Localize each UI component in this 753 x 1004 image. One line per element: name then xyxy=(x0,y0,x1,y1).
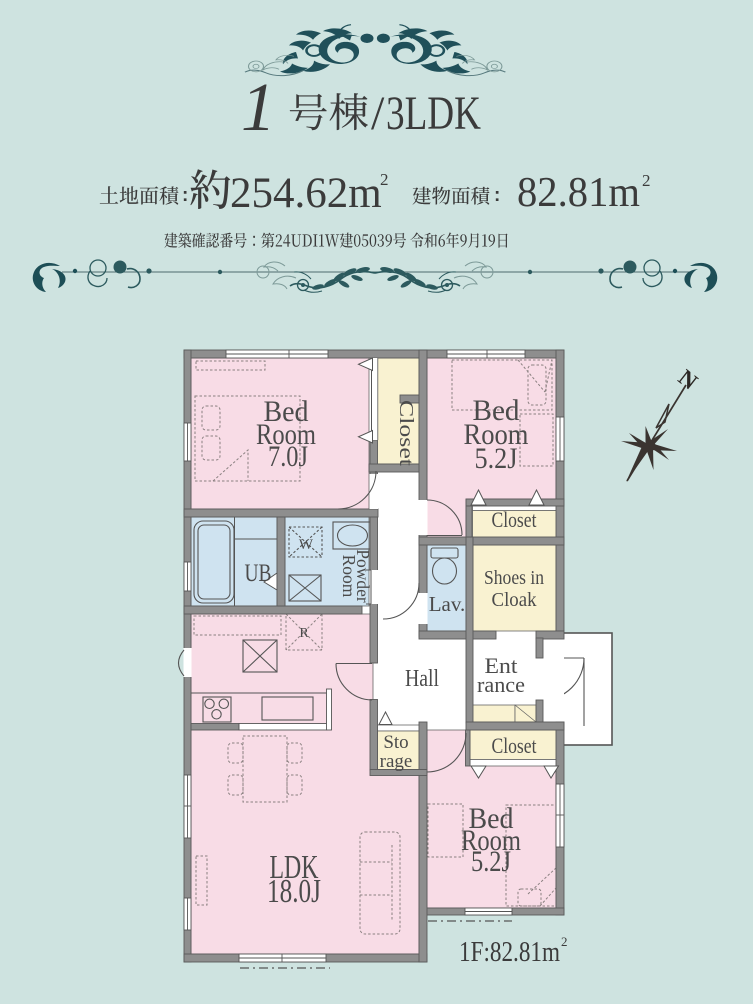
svg-text:Cloak: Cloak xyxy=(492,589,537,611)
svg-text:2: 2 xyxy=(642,171,651,190)
svg-text:3LDK: 3LDK xyxy=(386,87,481,140)
svg-text:Closet: Closet xyxy=(492,507,537,532)
svg-text:UB: UB xyxy=(245,560,272,587)
svg-text:254.62m: 254.62m xyxy=(230,170,382,217)
svg-text:rage: rage xyxy=(380,751,413,772)
svg-text:Shoes in: Shoes in xyxy=(484,567,544,589)
svg-text:2: 2 xyxy=(380,170,389,189)
svg-text:5.2J: 5.2J xyxy=(475,442,518,475)
svg-text:5.2J: 5.2J xyxy=(471,845,511,878)
svg-text::: : xyxy=(494,185,500,206)
svg-text:rance: rance xyxy=(477,672,525,697)
svg-text:W: W xyxy=(299,537,314,553)
svg-text:/: / xyxy=(371,87,385,140)
svg-text:R: R xyxy=(299,626,309,641)
svg-text::: : xyxy=(182,185,188,206)
svg-text:82.81m: 82.81m xyxy=(517,170,640,216)
svg-text:18.0J: 18.0J xyxy=(267,873,321,910)
svg-text:7.0J: 7.0J xyxy=(268,440,308,473)
svg-text:1F:82.81m: 1F:82.81m xyxy=(459,937,560,968)
svg-text:Room: Room xyxy=(339,555,359,598)
svg-text:Closet: Closet xyxy=(492,733,537,758)
svg-text:Hall: Hall xyxy=(405,666,439,692)
svg-text:Lav.: Lav. xyxy=(429,592,466,616)
svg-text:1: 1 xyxy=(241,69,276,145)
svg-text:Closet: Closet xyxy=(395,400,417,467)
svg-text:Sto: Sto xyxy=(383,732,408,753)
svg-text:2: 2 xyxy=(561,934,568,949)
